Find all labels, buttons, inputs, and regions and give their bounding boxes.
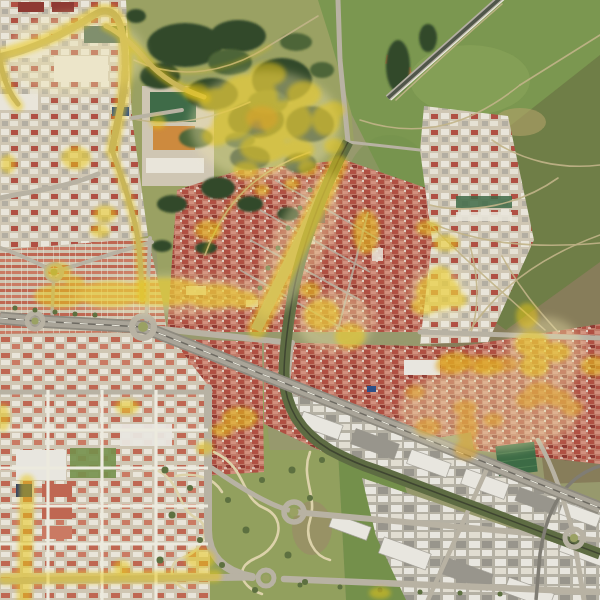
highlighted-street-southwest-h [4,576,216,579]
shrub-dot [162,467,169,474]
tree-blob [157,195,187,213]
tree-blob [237,196,263,212]
tree-blob [310,62,334,78]
shrub-dot [33,308,38,313]
highlight-blob [519,355,549,377]
highlight-blob [353,210,379,254]
garden-plots [456,196,512,208]
highlight-blob [300,282,320,298]
shrub-dot [458,591,463,596]
shrub-dot [285,552,292,559]
satellite-map-canvas[interactable] [0,0,600,600]
highlight-blob [202,126,230,146]
shrub-dot [338,585,343,590]
shrub-dot [157,557,164,564]
tree-blob [201,177,235,199]
highlight-blob [335,323,365,349]
highlight-blob [516,303,538,329]
shrub-dot [187,485,193,491]
highlight-blob-orange [483,413,503,427]
roundabout-island [570,534,578,542]
highlight-blob [429,266,451,282]
highlight-blob-orange [492,356,518,372]
school-building [146,158,204,173]
highlight-blob [542,342,570,362]
highlight-blob [324,138,344,154]
pool [367,386,376,392]
roundabout-island [263,575,270,582]
highlight-blob-orange [456,412,478,444]
highlight-blob [227,291,259,309]
highlight-blob [93,205,117,223]
highlight-blob [411,297,437,315]
highlight-blob [250,62,286,86]
highlight-blob [150,115,166,129]
highlight-blob-orange [463,355,493,373]
highlight-blob-orange [516,391,540,409]
industrial-shed [120,424,172,446]
tree-blob [126,9,146,23]
highlight-blob [284,178,300,190]
shrub-dot [259,477,265,483]
satellite-map-viewport[interactable] [0,0,600,600]
highlight-blob [0,154,16,174]
shrub-dot [289,467,296,474]
shrub-dot [197,537,203,543]
highlight-blob [196,441,214,455]
highlight-blob [90,224,110,238]
highlight-blob [240,133,288,163]
highlight-blob [282,139,314,161]
highlight-blob [298,160,318,176]
highlight-blob [185,548,215,570]
highlight-blob [254,184,270,196]
lawn-block [70,448,116,478]
shrub-dot [252,587,258,593]
shrub-dot [169,512,176,519]
tree-blob [210,20,266,52]
apartment-block [18,2,44,12]
roundabout-island [290,508,299,517]
highlight-blob [445,292,467,308]
highlight-blob [115,399,139,415]
shrub-dot [302,579,308,585]
highlight-blob [113,560,131,574]
highlight-blob [323,101,345,119]
highlight-blob [304,299,340,331]
shrub-dot [13,306,18,311]
shrub-dot [93,313,98,318]
shrub-dot [219,562,225,568]
highlight-blob [369,587,391,599]
highlight-blob-orange [454,440,478,460]
highlight-blob-orange [561,400,583,416]
shrub-dot [225,497,231,503]
tree-blob [419,24,437,52]
shrub-dot [53,310,58,315]
highlight-blob [433,234,459,252]
highlight-blob-orange [246,106,278,130]
shrub-dot [298,583,303,588]
greenhouse-row [456,212,512,221]
highlight-blob [195,220,221,240]
highlight-blob [211,423,233,437]
shrub-dot [418,590,423,595]
highlight-blob [233,161,259,179]
shrub-dot [307,495,313,501]
shrub-dot [498,592,503,597]
ground-region [410,45,530,115]
roundabout-island [32,318,39,325]
roundabout-island [138,322,148,332]
highlight-blob [183,83,209,101]
highlight-blob [287,81,321,107]
highlight-blob [61,146,91,170]
market-shed [404,360,440,375]
tree-blob [208,49,252,75]
apartment-block [52,2,74,12]
highlight-blob-orange [415,418,441,436]
shrub-dot [73,312,78,317]
shrub-dot [243,527,250,534]
tree-blob [152,240,172,252]
large-white-building [372,248,383,261]
highlight-blob [416,220,440,236]
shrub-dot [319,457,325,463]
highlight-blob-orange [435,357,465,375]
highlight-blob-orange [405,385,425,399]
